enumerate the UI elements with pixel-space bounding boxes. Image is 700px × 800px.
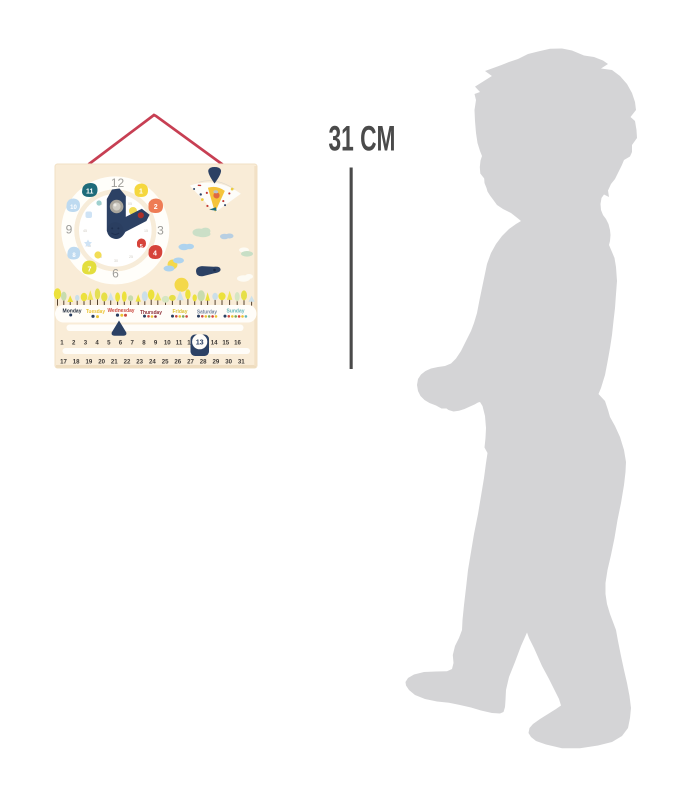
svg-text:24: 24 [149, 359, 156, 366]
svg-text:13: 13 [196, 337, 204, 346]
svg-text:31: 31 [238, 359, 245, 366]
svg-text:Monday: Monday [63, 309, 82, 315]
svg-text:2: 2 [154, 204, 158, 211]
svg-text:21: 21 [111, 359, 118, 366]
svg-text:Friday: Friday [173, 309, 188, 315]
svg-text:11: 11 [176, 340, 183, 347]
svg-text:22: 22 [124, 359, 131, 366]
svg-text:4: 4 [153, 251, 157, 258]
svg-text:3: 3 [157, 224, 164, 238]
svg-text:5: 5 [140, 244, 143, 250]
svg-text:12: 12 [111, 176, 125, 190]
svg-text:10: 10 [164, 340, 171, 347]
svg-text:23: 23 [136, 359, 143, 366]
svg-text:14: 14 [211, 340, 218, 347]
svg-text:31 CM: 31 CM [329, 120, 396, 159]
svg-text:15: 15 [222, 340, 229, 347]
svg-text:6: 6 [112, 267, 119, 281]
svg-text:25: 25 [162, 359, 169, 366]
svg-text:16: 16 [234, 340, 241, 347]
svg-text:2: 2 [72, 340, 76, 347]
svg-text:7: 7 [131, 340, 135, 347]
svg-text:28: 28 [200, 359, 207, 366]
svg-text:10: 10 [70, 205, 77, 211]
svg-text:Sunday: Sunday [227, 309, 245, 315]
svg-text:11: 11 [86, 189, 94, 196]
svg-text:7: 7 [88, 267, 92, 274]
svg-text:45: 45 [83, 229, 87, 233]
svg-text:9: 9 [66, 223, 73, 237]
svg-text:1: 1 [139, 189, 143, 196]
svg-text:8: 8 [142, 340, 146, 347]
svg-text:Tuesday: Tuesday [86, 309, 105, 315]
svg-text:26: 26 [174, 359, 181, 366]
svg-text:29: 29 [213, 359, 220, 366]
svg-text:20: 20 [98, 359, 105, 366]
svg-text:3: 3 [84, 340, 88, 347]
svg-text:Thursday: Thursday [140, 310, 162, 316]
svg-text:17: 17 [60, 359, 67, 366]
svg-text:25: 25 [129, 255, 133, 259]
svg-text:05: 05 [128, 202, 132, 206]
svg-text:Saturday: Saturday [197, 310, 217, 316]
svg-text:19: 19 [86, 359, 93, 366]
svg-text:27: 27 [187, 359, 194, 366]
svg-text:15: 15 [144, 229, 148, 233]
svg-text:Wednesday: Wednesday [108, 308, 135, 314]
svg-text:30: 30 [114, 259, 118, 263]
svg-text:18: 18 [73, 359, 80, 366]
svg-text:30: 30 [225, 359, 232, 366]
